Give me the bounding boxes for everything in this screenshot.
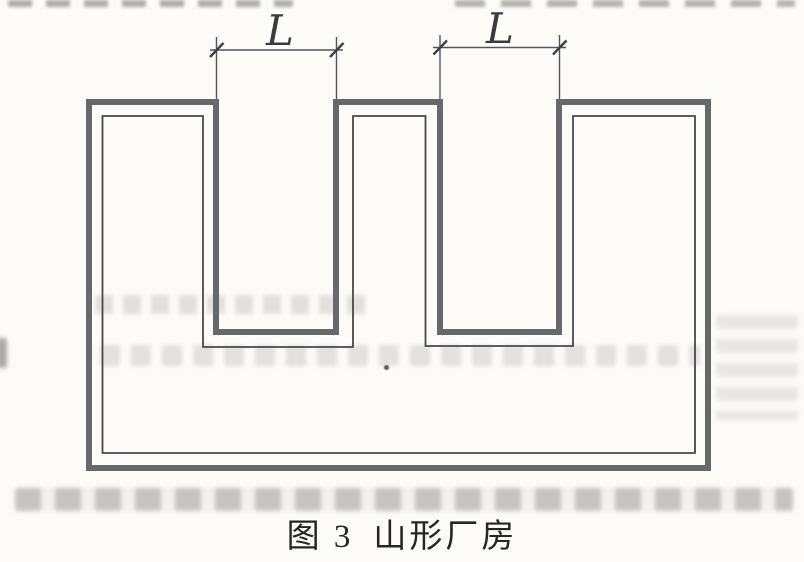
dimension-left-notch: L	[210, 6, 344, 100]
figure-title: 山形厂房	[373, 519, 517, 555]
figure-number: 图 3	[287, 519, 354, 555]
dimension-right-notch: L	[433, 4, 567, 100]
dimension-label: L	[485, 4, 514, 53]
building-wall-inner-line	[103, 116, 696, 453]
dimension-label: L	[265, 6, 294, 55]
factory-plan-diagram: L L	[0, 0, 804, 562]
building-wall-outer-outline	[89, 102, 708, 468]
figure-caption: 图 3山形厂房	[0, 509, 804, 557]
scanned-document-page: L L 图 3山形厂房	[0, 0, 804, 562]
